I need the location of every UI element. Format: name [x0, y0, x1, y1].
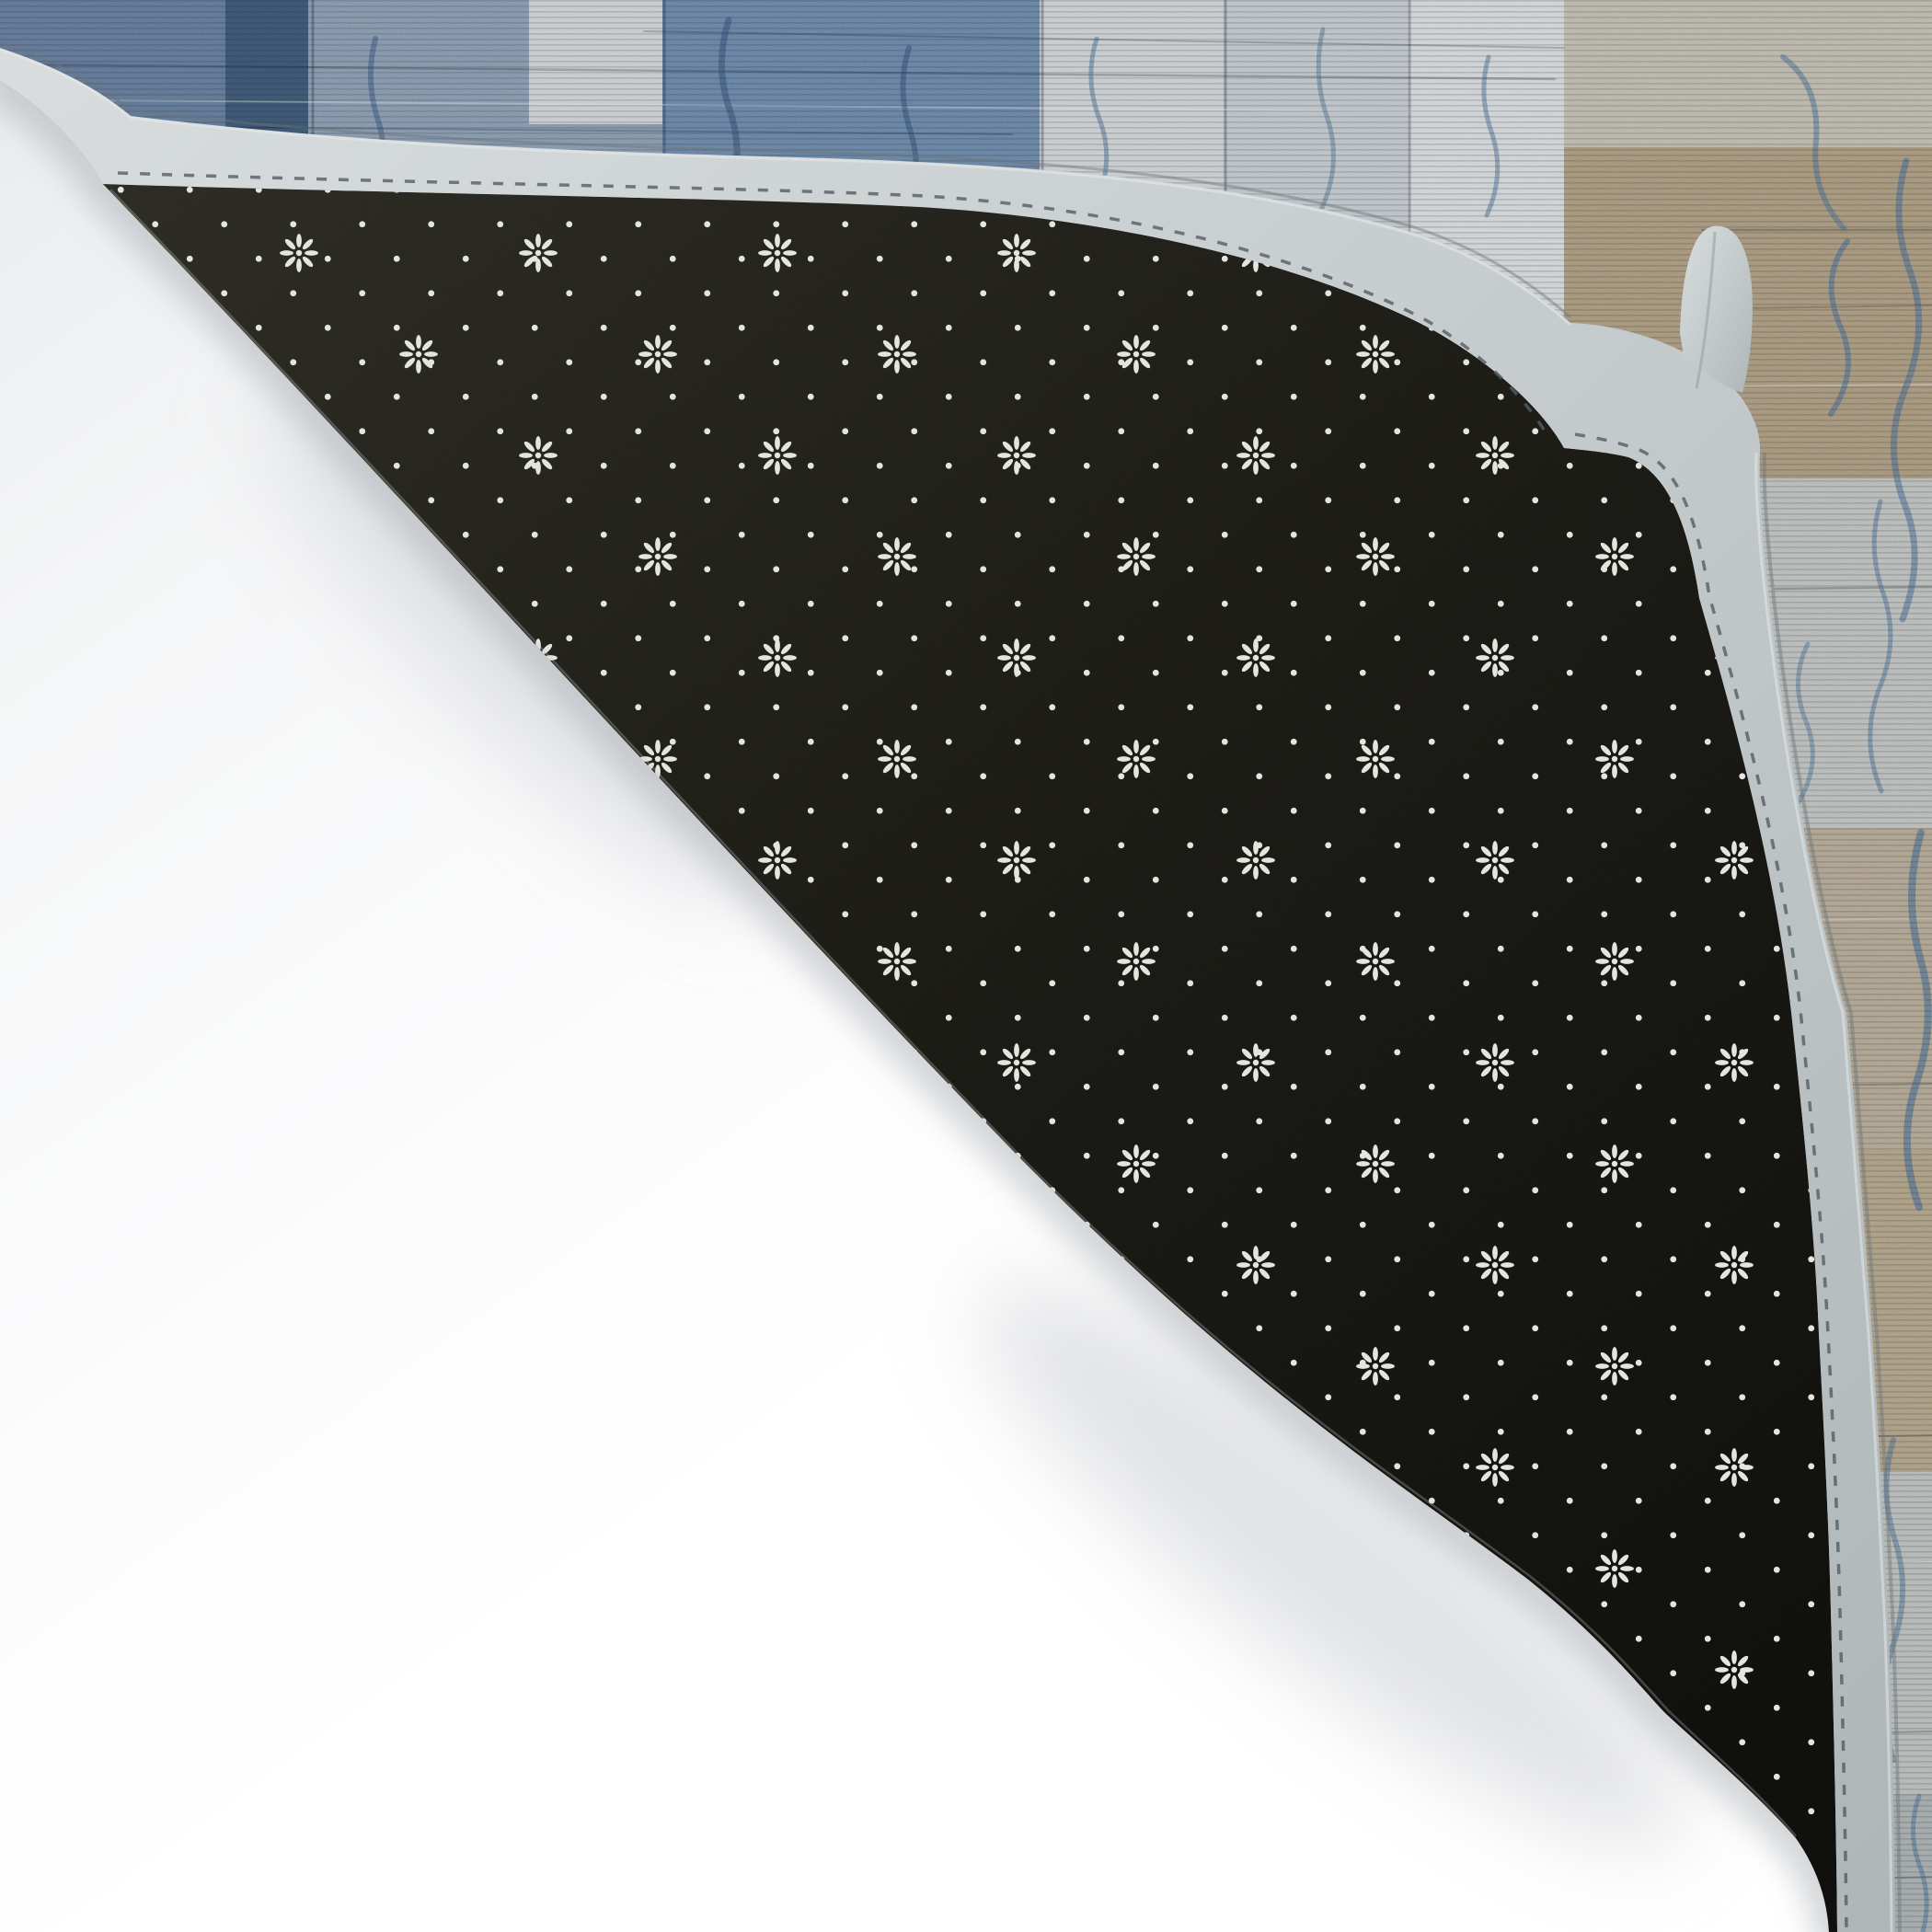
product-photo-stage: [0, 0, 1932, 1932]
rug-product-photo: [0, 0, 1932, 1932]
